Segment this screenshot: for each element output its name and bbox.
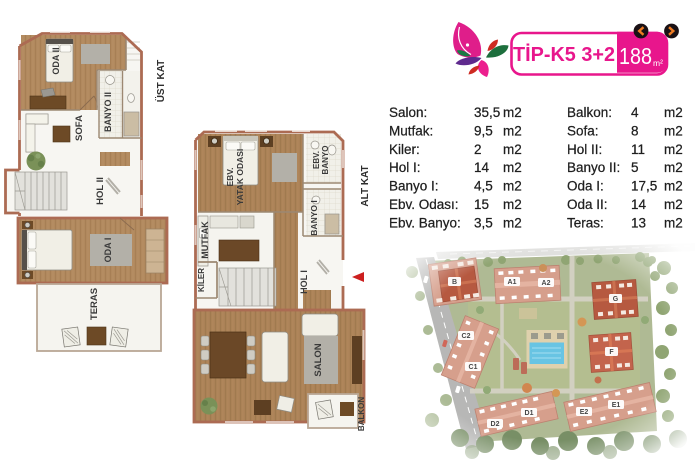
svg-text:Banyo II:: Banyo II: bbox=[567, 160, 620, 175]
svg-text:13: 13 bbox=[631, 215, 646, 230]
svg-text:m2: m2 bbox=[664, 197, 683, 212]
svg-text:m2: m2 bbox=[503, 105, 522, 120]
svg-text:ALT KAT: ALT KAT bbox=[360, 165, 371, 206]
svg-text:ODA I: ODA I bbox=[103, 238, 113, 263]
svg-text:Hol II:: Hol II: bbox=[567, 142, 602, 157]
svg-text:HOL I: HOL I bbox=[299, 270, 309, 294]
svg-text:9,5: 9,5 bbox=[474, 123, 493, 138]
svg-text:TİP-K5 3+2: TİP-K5 3+2 bbox=[513, 43, 615, 66]
svg-text:m²: m² bbox=[653, 58, 663, 68]
svg-text:m2: m2 bbox=[503, 160, 522, 175]
svg-text:EBV.: EBV. bbox=[225, 167, 235, 186]
svg-text:4,5: 4,5 bbox=[474, 179, 493, 194]
svg-text:m2: m2 bbox=[664, 179, 683, 194]
svg-text:Balkon:: Balkon: bbox=[567, 105, 612, 120]
svg-text:Mutfak:: Mutfak: bbox=[389, 123, 433, 138]
svg-text:188: 188 bbox=[619, 43, 652, 69]
svg-text:Sofa:: Sofa: bbox=[567, 123, 599, 138]
svg-text:11: 11 bbox=[631, 142, 645, 157]
svg-text:4: 4 bbox=[631, 105, 639, 120]
svg-text:BALKON: BALKON bbox=[357, 397, 366, 431]
svg-text:m2: m2 bbox=[503, 142, 522, 157]
svg-text:ÜST KAT: ÜST KAT bbox=[154, 60, 167, 103]
svg-text:HOL II: HOL II bbox=[95, 177, 106, 205]
svg-text:Oda I:: Oda I: bbox=[567, 179, 604, 194]
svg-text:Salon:: Salon: bbox=[389, 105, 427, 120]
svg-text:m2: m2 bbox=[503, 123, 522, 138]
svg-text:ODA II: ODA II bbox=[51, 47, 61, 74]
svg-text:35,5: 35,5 bbox=[474, 105, 500, 120]
svg-text:m2: m2 bbox=[664, 105, 683, 120]
svg-text:Kiler:: Kiler: bbox=[389, 142, 420, 157]
svg-text:KİLER: KİLER bbox=[197, 268, 206, 292]
svg-text:14: 14 bbox=[474, 160, 490, 175]
svg-text:14: 14 bbox=[631, 197, 647, 212]
svg-text:BANYO I: BANYO I bbox=[309, 200, 319, 235]
svg-text:m2: m2 bbox=[664, 215, 683, 230]
svg-text:8: 8 bbox=[631, 123, 639, 138]
svg-text:SOFA: SOFA bbox=[74, 115, 85, 141]
svg-text:YATAK ODASI: YATAK ODASI bbox=[235, 149, 245, 206]
svg-text:m2: m2 bbox=[664, 142, 683, 157]
svg-text:Teras:: Teras: bbox=[567, 215, 604, 230]
svg-text:17,5: 17,5 bbox=[631, 179, 657, 194]
svg-text:MUTFAK: MUTFAK bbox=[200, 221, 210, 259]
svg-text:EBV.: EBV. bbox=[312, 151, 321, 169]
svg-text:3,5: 3,5 bbox=[474, 215, 493, 230]
svg-text:TERAS: TERAS bbox=[89, 288, 100, 320]
svg-text:m2: m2 bbox=[503, 215, 522, 230]
svg-text:Hol I:: Hol I: bbox=[389, 160, 421, 175]
svg-text:Ebv. Odası:: Ebv. Odası: bbox=[389, 197, 459, 212]
svg-text:BANYO II: BANYO II bbox=[103, 92, 113, 132]
svg-text:5: 5 bbox=[631, 160, 639, 175]
svg-text:m2: m2 bbox=[503, 179, 522, 194]
svg-text:m2: m2 bbox=[503, 197, 522, 212]
svg-text:15: 15 bbox=[474, 197, 489, 212]
svg-text:Oda II:: Oda II: bbox=[567, 197, 608, 212]
svg-text:m2: m2 bbox=[664, 123, 683, 138]
svg-text:BANYO: BANYO bbox=[321, 146, 330, 175]
svg-text:m2: m2 bbox=[664, 160, 683, 175]
svg-text:Ebv. Banyo:: Ebv. Banyo: bbox=[389, 215, 461, 230]
svg-text:SALON: SALON bbox=[313, 343, 324, 376]
svg-text:Banyo I:: Banyo I: bbox=[389, 179, 439, 194]
svg-text:2: 2 bbox=[474, 142, 482, 157]
